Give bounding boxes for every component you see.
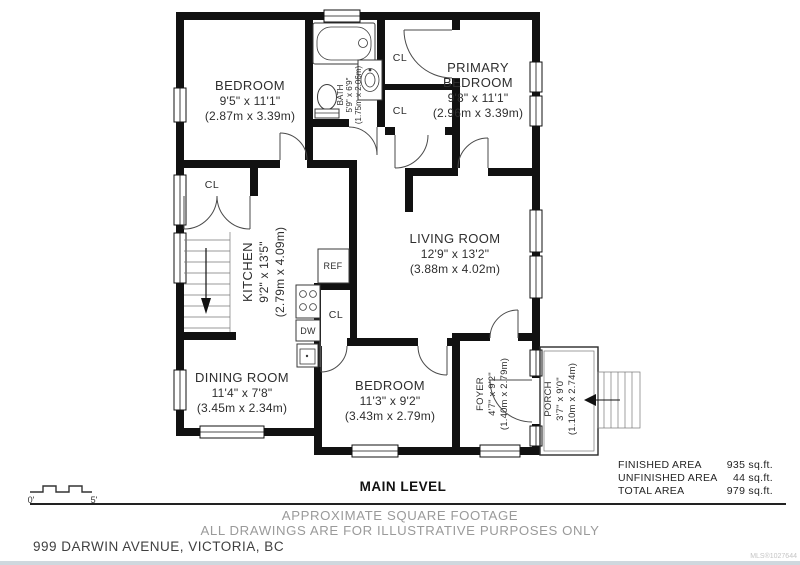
- living-imperial: 12'9" x 13'2": [421, 247, 489, 261]
- porch-imperial: 3'7" x 9'0": [555, 377, 566, 421]
- primary-imperial: 9'8" x 11'1": [448, 91, 509, 105]
- foyer-imperial: 4'7" x 9'2": [487, 372, 498, 416]
- bedroom2-metric: (3.43m x 2.79m): [345, 409, 435, 423]
- foyer-name: FOYER: [475, 377, 486, 411]
- area-table: FINISHED AREA 935 sq.ft. UNFINISHED AREA…: [618, 459, 773, 497]
- living-metric: (3.88m x 4.02m): [410, 262, 500, 276]
- closet-label-bedroom2: CL: [329, 309, 343, 321]
- dining-metric: (3.45m x 2.34m): [197, 401, 287, 415]
- living-name: LIVING ROOM: [409, 231, 500, 246]
- dishwasher-label: DW: [300, 326, 316, 336]
- bedroom2-imperial: 11'3" x 9'2": [360, 394, 421, 408]
- room-labels: BEDROOM 9'5" x 11'1" (2.87m x 3.39m) BAT…: [195, 52, 578, 435]
- disclaimer-line1: APPROXIMATE SQUARE FOOTAGE: [282, 508, 518, 523]
- refrigerator-label: REF: [324, 261, 343, 271]
- watermark-text: MLS®1027644: [750, 552, 797, 560]
- bedroom1-metric: (2.87m x 3.39m): [205, 109, 295, 123]
- kitchen-metric: (2.79m x 4.09m): [273, 227, 287, 317]
- interior-stairs: [184, 232, 230, 332]
- total-area-label: TOTAL AREA: [618, 485, 684, 497]
- porch-metric: (1.10m x 2.74m): [567, 363, 578, 435]
- finished-area-value: 935 sq.ft.: [727, 459, 773, 471]
- foyer-metric: (1.40m x 2.79m): [499, 358, 510, 430]
- stairs-down-arrow: [201, 248, 211, 314]
- scale-bar: 0' 5': [28, 486, 98, 505]
- level-title: MAIN LEVEL: [360, 479, 447, 494]
- steps-arrow: [584, 394, 620, 406]
- bedroom2-name: BEDROOM: [355, 378, 425, 393]
- stove-icon: [296, 285, 320, 318]
- primary-name1: PRIMARY: [447, 60, 509, 75]
- total-area-value: 979 sq.ft.: [727, 485, 773, 497]
- floor-plan-page: BEDROOM 9'5" x 11'1" (2.87m x 3.39m) BAT…: [0, 0, 800, 565]
- closet-label-lower: CL: [393, 105, 407, 117]
- bedroom1-imperial: 9'5" x 11'1": [220, 94, 281, 108]
- disclaimer-line2: ALL DRAWINGS ARE FOR ILLUSTRATIVE PURPOS…: [201, 523, 600, 538]
- primary-name2: BEDROOM: [443, 75, 513, 90]
- bedroom1-name: BEDROOM: [215, 78, 285, 93]
- primary-metric: (2.96m x 3.39m): [433, 106, 523, 120]
- kitchen-imperial: 9'2" x 13'5": [257, 241, 271, 303]
- bath-imperial: 5'9" x 6'9": [345, 77, 354, 112]
- bath-metric: (1.75m x 2.06m): [354, 66, 363, 125]
- floor-plan-svg: BEDROOM 9'5" x 11'1" (2.87m x 3.39m) BAT…: [0, 0, 800, 565]
- kitchen-name: KITCHEN: [240, 242, 255, 302]
- unfinished-area-value: 44 sq.ft.: [733, 472, 773, 484]
- dining-name: DINING ROOM: [195, 370, 289, 385]
- exterior-steps: [584, 372, 640, 428]
- porch-name: PORCH: [543, 381, 554, 416]
- address-text: 999 DARWIN AVENUE, VICTORIA, BC: [33, 539, 284, 554]
- bottom-strip: [0, 561, 800, 565]
- bathtub-icon: [313, 23, 375, 64]
- unfinished-area-label: UNFINISHED AREA: [618, 472, 718, 484]
- closet-label-hall: CL: [205, 179, 219, 191]
- bath-name: BATH: [336, 84, 345, 105]
- finished-area-label: FINISHED AREA: [618, 459, 702, 471]
- dining-imperial: 11'4" x 7'8": [212, 386, 273, 400]
- closet-label-upper: CL: [393, 52, 407, 64]
- kitchen-sink-icon: [297, 344, 318, 367]
